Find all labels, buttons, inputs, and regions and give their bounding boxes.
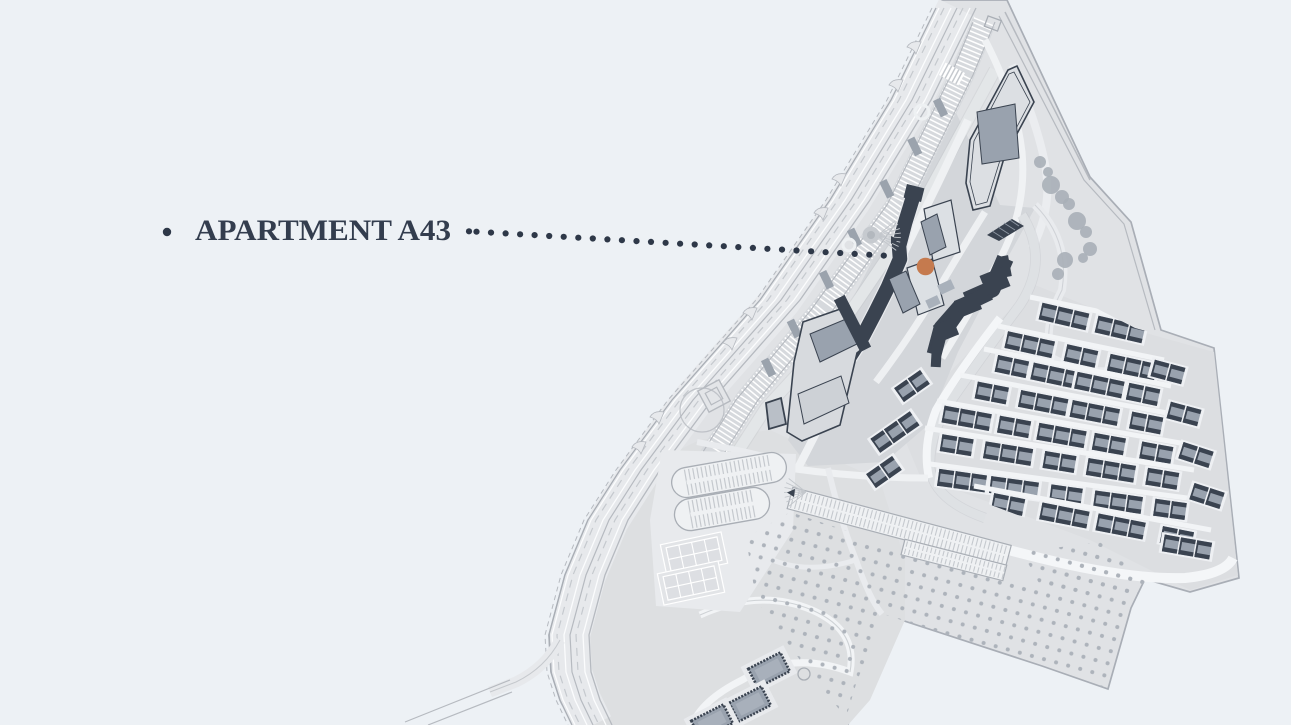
svg-text:APARTMENT A43: APARTMENT A43 [195, 214, 451, 247]
